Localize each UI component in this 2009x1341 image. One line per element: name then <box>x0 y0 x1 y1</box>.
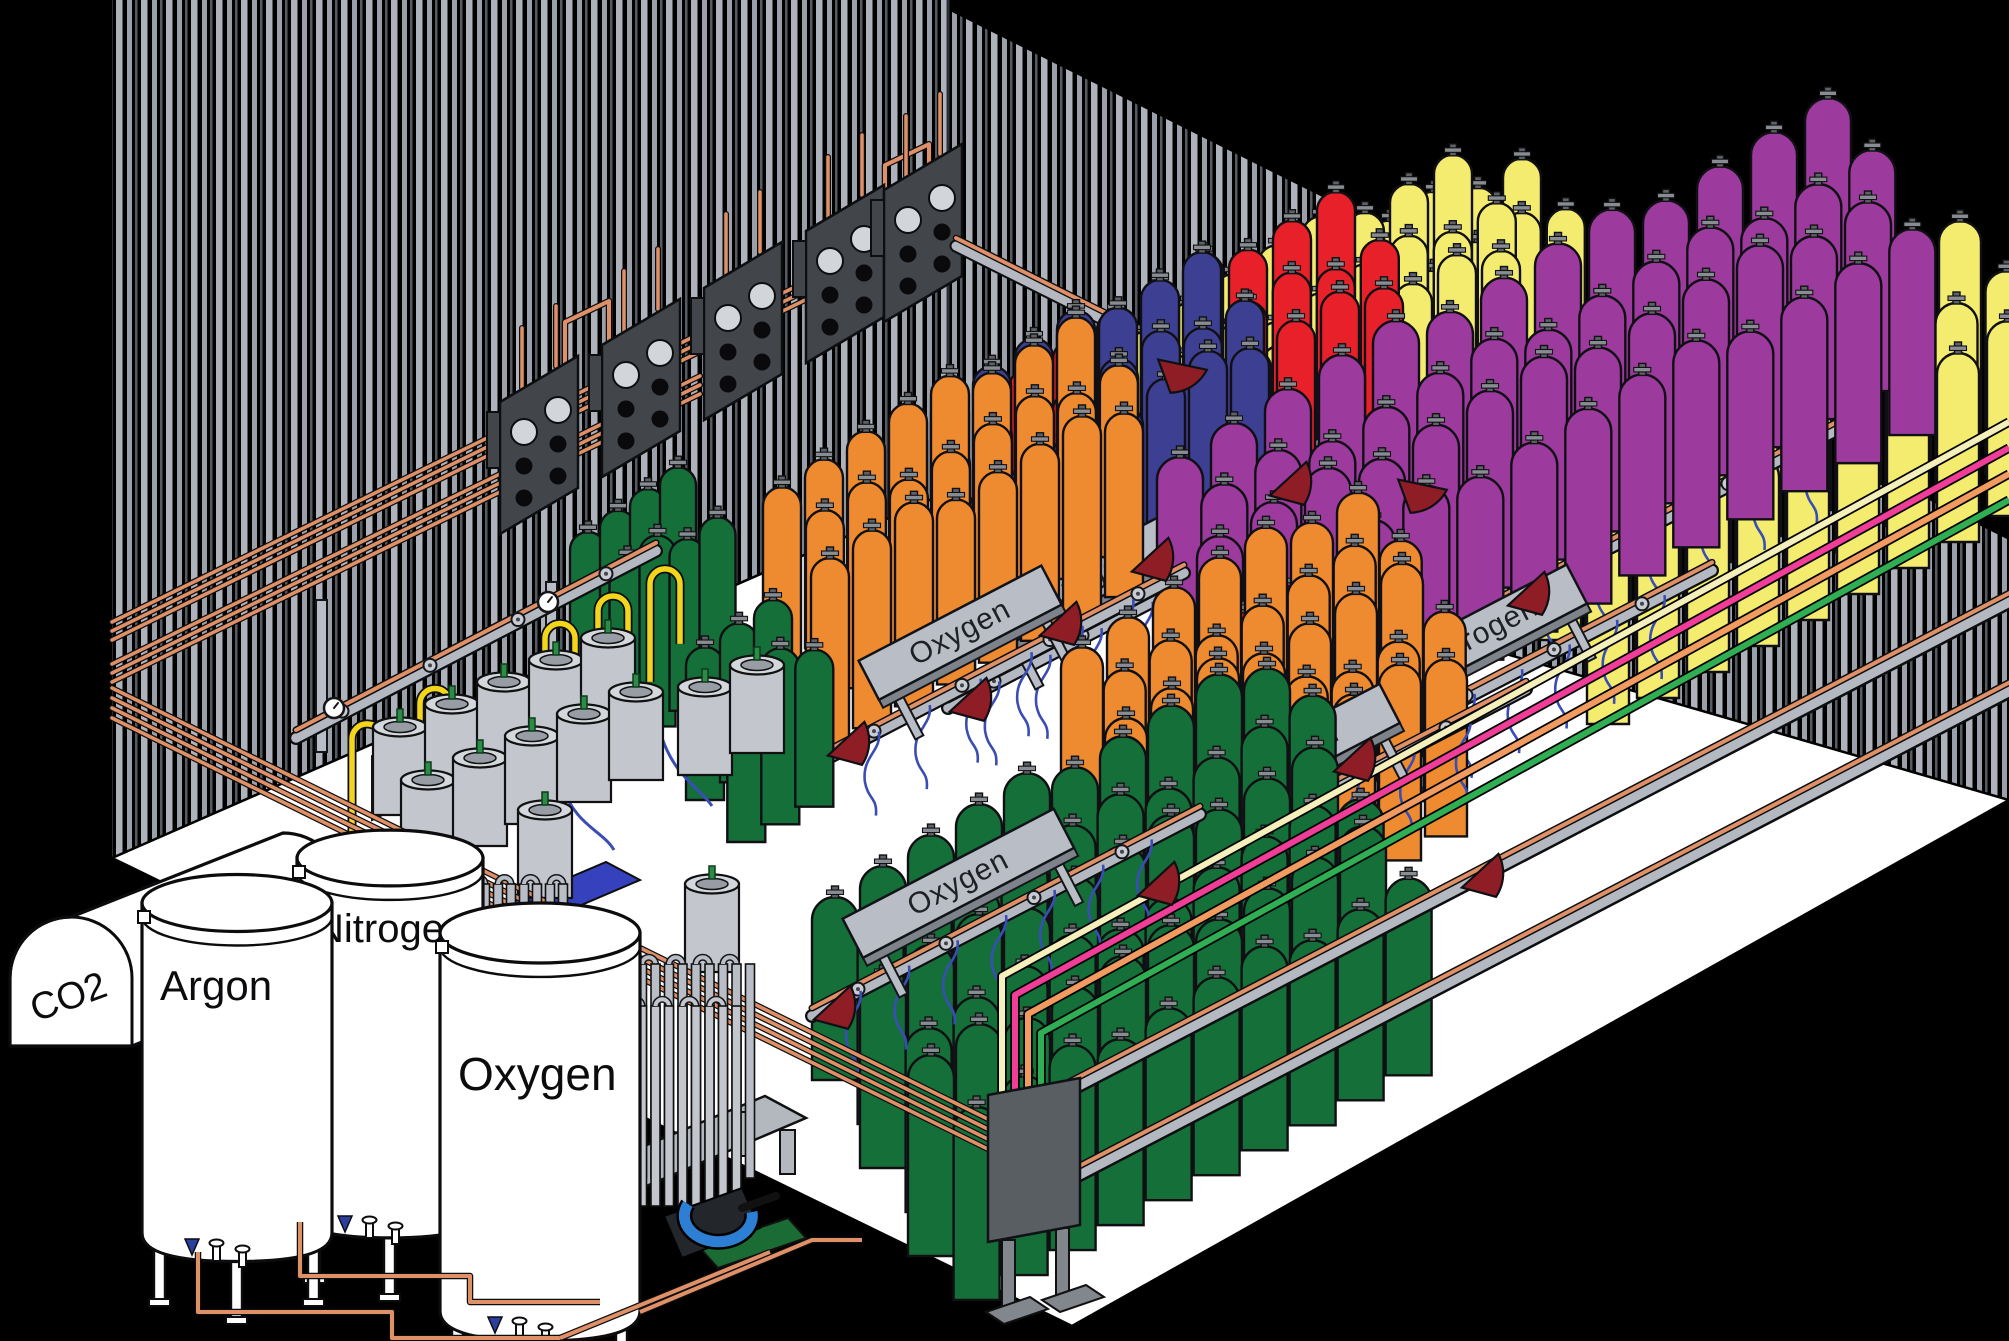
cylinder-valve-bar <box>1378 400 1395 405</box>
panel-port <box>856 297 873 314</box>
vaporizer-tube <box>705 1006 714 1206</box>
cylinder-valve-bar <box>1280 382 1297 387</box>
cylinder-valve-bar <box>1288 314 1305 319</box>
cylinder-valve-bar <box>1032 437 1049 442</box>
rail-valve-hub <box>1136 592 1140 596</box>
vaporizer-tube <box>719 1006 728 1206</box>
shape-ellipse <box>516 731 548 742</box>
cylinder-valve-bar <box>1346 538 1363 543</box>
cylinder-valve-bar <box>1388 314 1405 319</box>
cylinder-valve-bar <box>1820 91 1837 96</box>
panel-tab <box>487 412 500 468</box>
tank-foot <box>303 1299 324 1306</box>
cylinder-valve-bar <box>1304 688 1321 693</box>
dewar-valve <box>553 642 559 655</box>
cylinder-valve-bar <box>1236 293 1253 298</box>
rail-valve-hub <box>1552 648 1556 652</box>
cylinder-valve-bar <box>709 510 726 515</box>
cylinder-valve-bar <box>1390 634 1407 639</box>
shape-ellipse <box>620 687 652 698</box>
cylinder-valve-bar <box>942 369 959 374</box>
shape-ellipse <box>696 879 728 890</box>
cryo-dewar <box>678 669 732 775</box>
cylinder-valve-bar <box>1194 245 1211 250</box>
rail-valve-hub <box>1120 850 1124 854</box>
cylinder-valve-bar <box>1449 248 1466 253</box>
cylinder-valve-bar <box>649 528 666 533</box>
cylinder-valve-bar <box>1115 729 1132 734</box>
cylinder-valve-bar <box>1698 272 1715 277</box>
shape-ellipse <box>689 682 721 693</box>
panel-gauge <box>749 283 775 309</box>
cylinder-valve-bar <box>1580 402 1597 407</box>
cylinder-valve-bar <box>1283 266 1300 271</box>
cylinder-valve-bar <box>971 797 988 802</box>
junction-board <box>988 1078 1080 1242</box>
panel-gauge <box>511 419 537 445</box>
vaporizer-tube <box>665 1006 674 1206</box>
panel-port <box>652 411 669 428</box>
panel-gauge <box>715 305 741 331</box>
rail-valve-hub <box>856 987 860 991</box>
shape-ellipse <box>540 655 572 666</box>
panel-port <box>822 319 839 336</box>
cylinder-valve-bar <box>1334 348 1351 353</box>
cylinder-valve-bar <box>1998 264 2009 269</box>
panel-port <box>652 379 669 396</box>
cylinder-valve-bar <box>1226 416 1243 421</box>
tank-foot <box>379 1294 400 1301</box>
shape-path <box>730 665 784 753</box>
tank-dome <box>297 830 483 886</box>
cylinder-valve-bar <box>1400 229 1417 234</box>
rail-valve-hub <box>944 941 948 945</box>
cylinder-valve-bar <box>1300 568 1317 573</box>
gas-cylinder <box>795 650 833 807</box>
cylinder-valve-bar <box>1860 195 1877 200</box>
panel-port <box>934 224 951 241</box>
shape-ellipse <box>513 1318 527 1325</box>
panel-port <box>618 401 635 418</box>
cylinder-valve-bar <box>1172 450 1189 455</box>
cylinder-valve-bar <box>640 482 657 487</box>
cylinder-valve-bar <box>1211 802 1228 807</box>
cylinder-valve-bar <box>1850 256 1867 261</box>
cylinder-valve-bar <box>1796 290 1813 295</box>
shape-ellipse <box>389 1223 403 1230</box>
cylinder-valve-bar <box>1401 177 1418 182</box>
shape-ellipse <box>568 709 600 720</box>
cylinder-valve-bar <box>1950 346 1967 351</box>
cylinder-valve-bar <box>1163 918 1180 923</box>
cylinder-valve-bar <box>1864 143 1881 148</box>
cylinder-valve-bar <box>822 551 839 556</box>
cylinder-valve-bar <box>875 859 892 864</box>
cylinder-valve-bar <box>1371 233 1388 238</box>
panel-port <box>618 433 635 450</box>
panel-gauge <box>895 207 921 233</box>
panel-port <box>550 468 567 485</box>
panel-gauge <box>929 185 955 211</box>
shape-ellipse <box>236 1246 250 1253</box>
cylinder-valve-bar <box>1418 479 1435 484</box>
cylinder-valve-bar <box>1604 202 1621 207</box>
cylinder-valve-bar <box>774 480 791 485</box>
dewar-valve <box>754 647 760 660</box>
cylinder-valve-bar <box>1307 740 1324 745</box>
cylinder-valve-bar <box>1304 515 1321 520</box>
panel-port <box>900 246 917 263</box>
cylinder-valve-bar <box>1392 533 1409 538</box>
panel-port <box>754 354 771 371</box>
cylinder-valve-bar <box>806 643 823 648</box>
cylinder-valve-bar <box>827 890 844 895</box>
cylinder-valve-bar <box>1320 461 1337 466</box>
cylinder-valve-bar <box>1445 148 1462 153</box>
cylinder-valve-bar <box>1688 333 1705 338</box>
cylinder-valve-bar <box>1256 939 1273 944</box>
cylinder-valve-bar <box>1752 238 1769 243</box>
cylinder-valve-bar <box>1405 277 1422 282</box>
cylinder-valve-bar <box>1742 324 1759 329</box>
cylinder-valve-bar <box>1160 781 1177 786</box>
cylinder-valve-bar <box>1112 787 1129 792</box>
cylinder-valve-bar <box>1212 529 1229 534</box>
vaporizer-leg <box>780 1130 795 1174</box>
cylinder-valve-bar <box>1259 771 1276 776</box>
cylinder-valve-bar <box>1444 225 1461 230</box>
shape-ellipse <box>539 1324 553 1331</box>
cylinder-valve-bar <box>942 444 959 449</box>
cylinder-valve-bar <box>1332 285 1349 290</box>
dewar-valve <box>702 669 708 682</box>
cylinder-valve-bar <box>610 503 627 508</box>
rail-valve-hub <box>1640 602 1644 606</box>
cylinder-valve-bar <box>1256 719 1273 724</box>
cylinder-valve-bar <box>1110 301 1127 306</box>
shape-ellipse <box>529 805 561 816</box>
vaporizer-tube <box>692 1006 701 1206</box>
tank-foot <box>149 1299 170 1306</box>
cylinder-valve-bar <box>1948 296 1965 301</box>
vaporizer-tube <box>651 1006 660 1206</box>
cylinder-valve-bar <box>1112 1032 1129 1037</box>
cylinder-valve-bar <box>1200 344 1217 349</box>
cryo-dewar <box>730 647 784 753</box>
cylinder-valve-bar <box>1120 610 1137 615</box>
shape-ellipse <box>464 753 496 764</box>
cylinder-valve-bar <box>1210 651 1227 656</box>
cylinder-valve-bar <box>1348 586 1365 591</box>
shape-ellipse <box>412 775 444 786</box>
cylinder-valve-bar <box>1208 628 1225 633</box>
cylinder-valve-bar <box>1110 358 1127 363</box>
cylinder-valve-bar <box>1496 271 1513 276</box>
panel-port <box>550 436 567 453</box>
panel-gauge <box>817 248 843 274</box>
shape-path <box>678 687 732 775</box>
cylinder-valve-bar <box>1026 389 1043 394</box>
cylinder-valve-bar <box>1208 750 1225 755</box>
panel-tab <box>793 241 806 297</box>
panel-port <box>720 344 737 361</box>
cylinder-valve-bar <box>1019 766 1036 771</box>
dewar-valve <box>542 792 548 805</box>
cylinder-valve-bar <box>1112 922 1129 927</box>
cylinder-valve-bar <box>1472 470 1489 475</box>
panel-gauge <box>545 397 571 423</box>
cylinder-valve-bar <box>1163 808 1180 813</box>
cylinder-valve-bar <box>1352 902 1369 907</box>
rail-valve-hub <box>428 663 432 667</box>
cylinder-valve-bar <box>1644 306 1661 311</box>
cryo-dewar <box>453 740 507 846</box>
panel-port <box>856 265 873 282</box>
cylinder-valve-bar <box>1304 933 1321 938</box>
cylinder-valve-bar <box>772 641 789 646</box>
gas-cylinder <box>1835 263 1881 463</box>
cylinder-valve-bar <box>816 503 833 508</box>
cylinder-valve-bar <box>1428 418 1445 423</box>
rail-valve-hub <box>1032 896 1036 900</box>
cylinder-valve-bar <box>1074 409 1091 414</box>
cylinder-valve-bar <box>1594 288 1611 293</box>
tank-dome <box>142 875 332 932</box>
cylinder-valve-bar <box>1357 206 1374 211</box>
panel-gauge <box>647 340 673 366</box>
dewar-valve <box>449 686 455 699</box>
cylinder-valve-bar <box>1344 664 1361 669</box>
cylinder-valve-bar <box>1438 652 1455 657</box>
tank-dome <box>440 903 640 963</box>
cylinder-valve-bar <box>1240 243 1257 248</box>
cylinder-valve-bar <box>1488 196 1505 201</box>
cylinder-valve-bar <box>968 990 985 995</box>
vaporizer-tube <box>678 1006 687 1206</box>
vaporizer-tube <box>746 964 755 1178</box>
cylinder-valve-bar <box>1756 211 1773 216</box>
dewar-valve <box>529 718 535 731</box>
cylinder-valve-bar <box>1152 324 1169 329</box>
cylinder-valve-bar <box>968 1100 985 1105</box>
cylinder-valve-bar <box>1328 185 1345 190</box>
cylinder-valve-bar <box>948 492 965 497</box>
cylinder-valve-bar <box>1536 350 1553 355</box>
cryo-dewar <box>557 696 611 802</box>
cylinder-valve-bar <box>1513 206 1530 211</box>
cylinder-valve-bar <box>1712 159 1729 164</box>
cylinder-valve-bar <box>679 532 696 537</box>
cylinder-valve-bar <box>923 1048 940 1053</box>
cylinder-valve-bar <box>1254 598 1271 603</box>
panel-port <box>822 287 839 304</box>
cylinder-valve-bar <box>1550 236 1567 241</box>
dewar-valve <box>633 674 639 687</box>
tank-foot <box>226 1317 247 1324</box>
gas-cylinder <box>1889 229 1935 435</box>
cylinder-valve-bar <box>1216 477 1233 482</box>
dewar-valve <box>501 664 507 677</box>
cylinder-valve-bar <box>1068 310 1085 315</box>
cylinder-valve-bar <box>1256 646 1273 651</box>
gas-cylinder <box>1781 297 1827 491</box>
panel-tab <box>871 200 884 256</box>
cylinder-valve-bar <box>1327 262 1344 267</box>
cylinder-valve-bar <box>1904 222 1921 227</box>
cylinder-valve-bar <box>670 460 687 465</box>
shape-ellipse <box>436 699 468 710</box>
cylinder-valve-bar <box>1346 687 1363 692</box>
panel-port <box>754 322 771 339</box>
cylinder-valve-bar <box>1242 341 1259 346</box>
shape-ellipse <box>384 722 416 733</box>
dewar-valve <box>397 709 403 722</box>
shape-ellipse <box>210 1240 224 1247</box>
cylinder-valve-bar <box>1118 711 1135 716</box>
dewar-valve <box>425 762 431 775</box>
cylinder-valve-bar <box>1068 386 1085 391</box>
shape-path <box>609 692 663 780</box>
gas-cylinder <box>1727 331 1773 519</box>
cylinder-valve-bar <box>858 424 875 429</box>
cylinder-valve-bar <box>984 366 1001 371</box>
rail-valve-hub <box>516 618 520 622</box>
gas-plant-illustration: ArgonCarbon DioxideHeliumArgonNitrogenHy… <box>0 0 2009 1341</box>
cylinder-valve-bar <box>1658 193 1675 198</box>
cylinder-valve-bar <box>1166 580 1183 585</box>
cylinder-valve-bar <box>1194 321 1211 326</box>
shape-ellipse <box>592 633 624 644</box>
dewar-valve <box>709 866 715 879</box>
shape-ellipse <box>741 660 773 671</box>
rail-valve-hub <box>960 683 964 687</box>
cylinder-valve-bar <box>1482 384 1499 389</box>
cylinder-valve-bar <box>1270 443 1287 448</box>
cylinder-valve-bar <box>1152 273 1169 278</box>
cylinder-valve-bar <box>1590 340 1607 345</box>
cylinder-valve-bar <box>1376 281 1393 286</box>
shape-path <box>453 758 507 846</box>
cylinder-valve-bar <box>1526 436 1543 441</box>
cylinder-valve-bar <box>1212 550 1229 555</box>
band-buckle <box>138 911 150 923</box>
cylinder-valve-bar <box>1514 152 1531 157</box>
rail-valve-hub <box>604 572 608 576</box>
cylinder-valve-bar <box>1374 452 1391 457</box>
panel-port <box>900 278 917 295</box>
band-buckle <box>293 866 305 878</box>
panel-tab <box>691 298 704 354</box>
dewar-valve <box>477 740 483 753</box>
cylinder-valve-bar <box>900 396 917 401</box>
cylinder-valve-bar <box>1557 202 1574 207</box>
cylinder-valve-bar <box>1324 434 1341 439</box>
cylinder-valve-bar <box>1952 214 1969 219</box>
cylinder-valve-bar <box>1432 366 1449 371</box>
cylinder-valve-bar <box>1648 254 1665 258</box>
cylinder-valve-bar <box>1400 871 1417 876</box>
cylinder-valve-bar <box>765 593 782 598</box>
panel-gauge <box>613 362 639 388</box>
cylinder-valve-bar <box>1211 667 1228 672</box>
dewar-valve <box>605 620 611 633</box>
cylinder-valve-bar <box>1163 698 1180 703</box>
cylinder-valve-bar <box>1493 244 1510 249</box>
cryo-dewar <box>609 674 663 780</box>
cylinder-valve-bar <box>1160 1001 1177 1006</box>
cylinder-valve-bar <box>1442 305 1459 310</box>
gas-cylinder <box>1063 416 1101 619</box>
cylinder-valve-bar <box>580 525 597 530</box>
shape-ellipse <box>363 1217 377 1224</box>
cylinder-valve-bar <box>1208 970 1225 975</box>
cylinder-valve-bar <box>1634 367 1651 372</box>
tank-label: Oxygen <box>458 1048 617 1100</box>
cylinder-valve-bar <box>1064 1038 1081 1043</box>
cylinder-valve-bar <box>1392 657 1409 662</box>
shape-path <box>557 714 611 802</box>
cylinder-valve-bar <box>923 828 940 833</box>
cylinder-valve-bar <box>1298 669 1315 674</box>
cylinder-valve-bar <box>1115 949 1132 954</box>
cylinder-valve-bar <box>1258 520 1275 525</box>
cylinder-valve-bar <box>920 1021 937 1026</box>
cylinder-valve-bar <box>906 495 923 500</box>
panel-port <box>720 376 737 393</box>
cylinder-valve-bar <box>1162 633 1179 638</box>
band-buckle <box>436 941 448 953</box>
cylinder-valve-bar <box>984 417 1001 422</box>
gas-cylinder <box>1619 374 1665 575</box>
cylinder-valve-bar <box>900 472 917 477</box>
cylinder-valve-bar <box>1540 323 1557 328</box>
tank-body <box>142 903 332 1262</box>
cylinder-valve-bar <box>990 465 1007 470</box>
cylinder-valve-bar <box>1350 485 1367 490</box>
cylinder-valve-bar <box>1067 760 1084 765</box>
cylinder-valve-bar <box>1116 406 1133 411</box>
cylinder-valve-bar <box>1702 220 1719 225</box>
cylinder-valve-bar <box>1436 604 1453 609</box>
rail-valve-hub <box>872 729 876 733</box>
cylinder-valve-bar <box>2000 314 2009 319</box>
panel-tab <box>589 355 602 411</box>
cylinder-valve-bar <box>1486 332 1503 337</box>
cylinder-valve-bar <box>1302 616 1319 621</box>
panel-port <box>516 458 533 475</box>
cylinder-valve-bar <box>1116 663 1133 668</box>
cylinder-valve-bar <box>1806 229 1823 234</box>
cylinder-valve-bar <box>731 616 748 621</box>
cylinder-valve-bar <box>1164 681 1181 686</box>
cylinder-valve-bar <box>1026 338 1043 343</box>
cylinder-valve-bar <box>864 523 881 528</box>
vaporizer-tube <box>732 1006 741 1206</box>
cylinder-valve-bar <box>1064 818 1081 823</box>
cylinder-valve-bar <box>1284 214 1301 219</box>
cylinder-valve-bar <box>858 475 875 480</box>
cylinder-valve-bar <box>971 1017 988 1022</box>
cylinder-valve-bar <box>1259 661 1276 666</box>
panel-port <box>934 256 951 273</box>
cylinder-valve-bar <box>1810 177 1827 182</box>
cylinder-valve-bar <box>1766 125 1783 129</box>
dewar-valve <box>581 696 587 709</box>
tank-label: Argon <box>160 962 272 1009</box>
shape-ellipse <box>488 677 520 688</box>
panel-port <box>516 490 533 507</box>
gas-cylinder <box>1673 340 1719 547</box>
